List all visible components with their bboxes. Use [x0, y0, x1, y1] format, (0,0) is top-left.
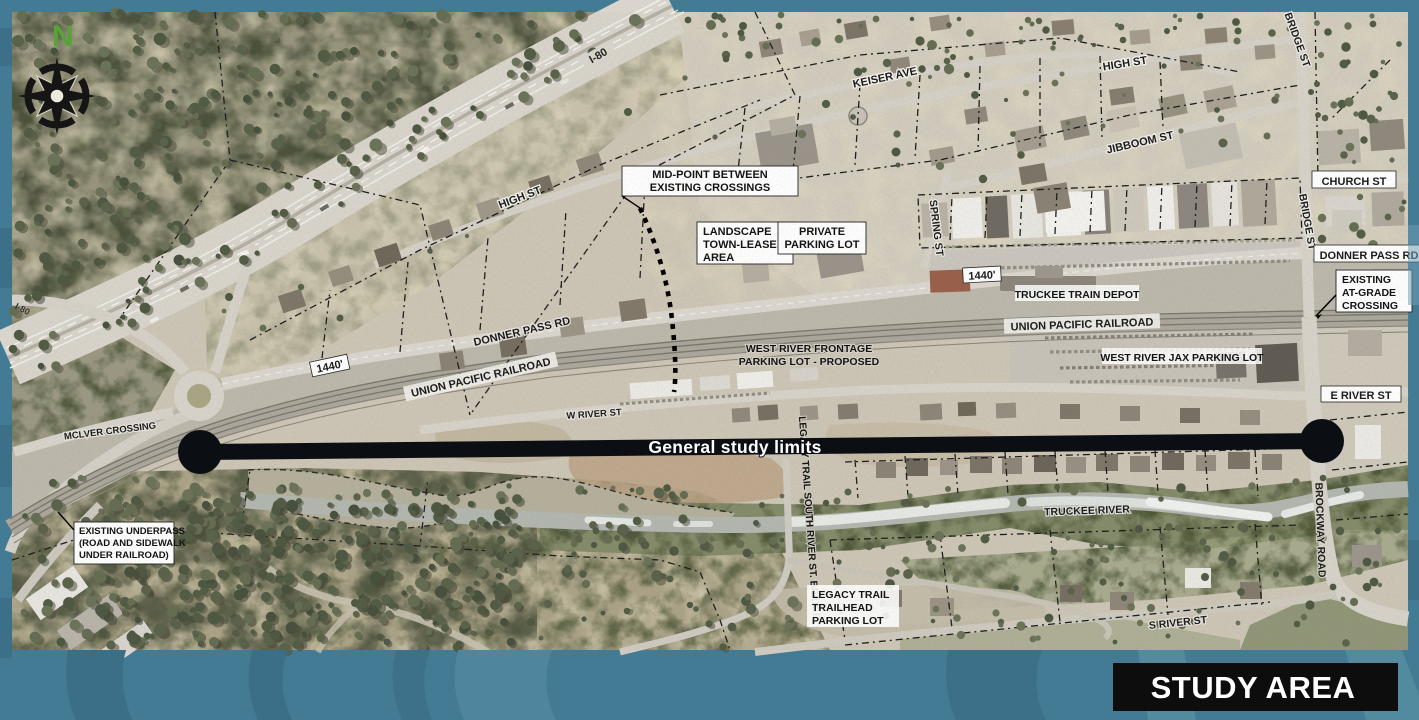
svg-text:STUDY AREA: STUDY AREA — [1151, 670, 1356, 705]
svg-text:General study limits: General study limits — [648, 437, 821, 457]
svg-text:N: N — [52, 20, 74, 53]
